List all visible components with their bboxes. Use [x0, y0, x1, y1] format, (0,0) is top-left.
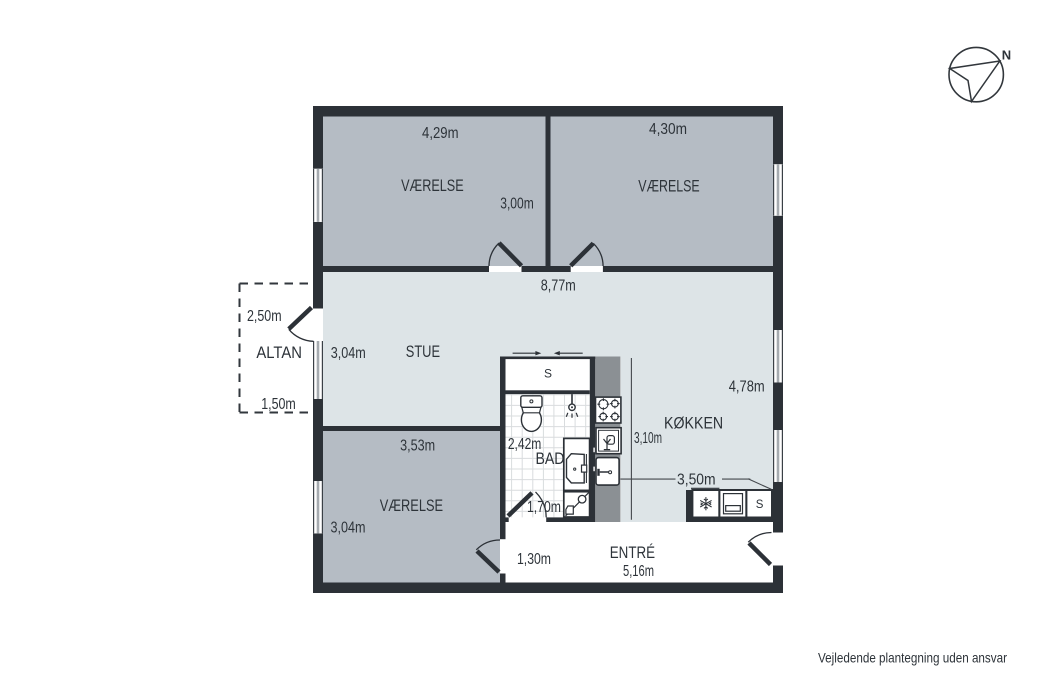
svg-text:4,29m: 4,29m	[422, 125, 459, 142]
svg-text:3,04m: 3,04m	[331, 345, 366, 362]
svg-text:3,50m: 3,50m	[677, 471, 716, 488]
svg-text:1,70m: 1,70m	[527, 499, 561, 516]
svg-text:VÆRELSE: VÆRELSE	[380, 497, 443, 515]
svg-text:3,10m: 3,10m	[634, 430, 662, 447]
svg-text:4,78m: 4,78m	[729, 379, 765, 396]
svg-text:ALTAN: ALTAN	[256, 344, 302, 362]
svg-text:STUE: STUE	[406, 343, 440, 361]
svg-text:3,04m: 3,04m	[331, 520, 366, 537]
svg-text:VÆRELSE: VÆRELSE	[401, 177, 464, 195]
svg-text:1,30m: 1,30m	[517, 551, 551, 568]
svg-text:VÆRELSE: VÆRELSE	[638, 177, 699, 195]
svg-text:3,53m: 3,53m	[400, 437, 435, 454]
svg-text:2,50m: 2,50m	[247, 308, 282, 325]
svg-text:1,50m: 1,50m	[261, 396, 296, 413]
svg-text:S: S	[544, 367, 552, 381]
svg-text:ENTRÉ: ENTRÉ	[610, 543, 655, 562]
svg-text:Vejledende plantegning uden an: Vejledende plantegning uden ansvar	[818, 651, 1007, 666]
svg-text:4,30m: 4,30m	[649, 121, 687, 138]
svg-text:3,00m: 3,00m	[500, 196, 534, 213]
svg-text:5,16m: 5,16m	[623, 563, 654, 580]
svg-text:8,77m: 8,77m	[541, 278, 576, 295]
svg-text:N: N	[1002, 48, 1011, 63]
svg-text:S: S	[756, 499, 764, 511]
svg-text:KØKKEN: KØKKEN	[664, 415, 723, 433]
svg-text:2,42m: 2,42m	[508, 436, 542, 453]
